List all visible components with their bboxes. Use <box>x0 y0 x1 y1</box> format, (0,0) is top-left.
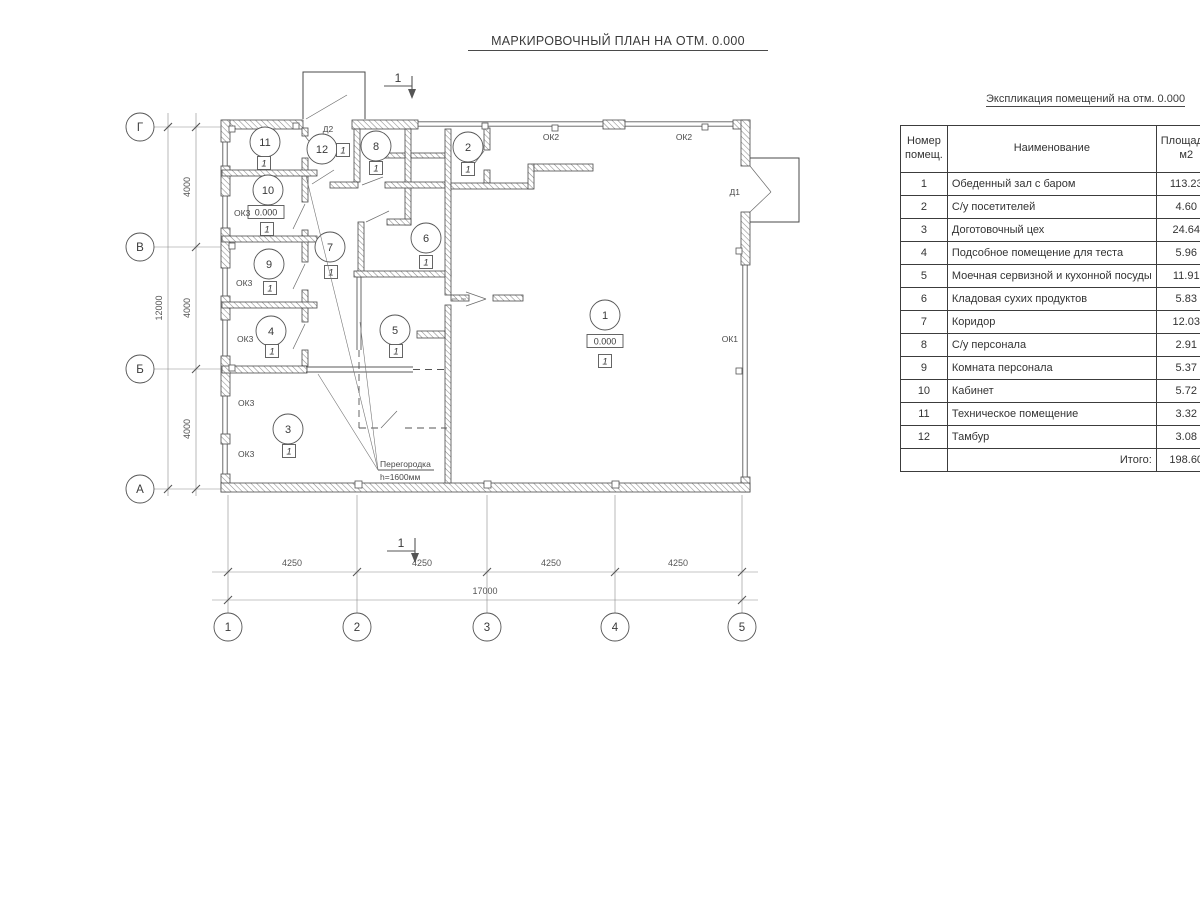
room-number: 3 <box>901 219 948 242</box>
section-mark-top: 1 <box>384 71 416 99</box>
window-label-ok3: ОК3 <box>236 278 253 288</box>
table-row: 9Комната персонала5.37 <box>901 357 1200 380</box>
svg-text:1: 1 <box>465 165 470 176</box>
room-marker-1: 1 <box>590 300 620 330</box>
table-row: 6Кладовая сухих продуктов5.83 <box>901 288 1200 311</box>
floor-mark: 1 <box>325 266 338 279</box>
table-row: 5Моечная сервизной и кухонной посуды11.9… <box>901 265 1200 288</box>
room-schedule-table: Номер помещ. Наименование Площадь, м2 Ка… <box>900 125 1200 472</box>
door-label-d1: Д1 <box>730 187 741 197</box>
grid-col-2: 2 <box>354 622 360 634</box>
room-number: 2 <box>901 196 948 219</box>
svg-text:1: 1 <box>267 284 272 295</box>
grid-row-a: А <box>136 484 144 496</box>
dim-4000-1: 4000 <box>182 177 192 197</box>
room-area: 24.64 <box>1156 219 1200 242</box>
table-row: 4Подсобное помещение для теста5.96 <box>901 242 1200 265</box>
floor-mark: 1 <box>266 345 279 358</box>
room-name: Подсобное помещение для теста <box>947 242 1156 265</box>
room-area: 5.72 <box>1156 380 1200 403</box>
dim-4250-4: 4250 <box>668 558 688 568</box>
svg-text:1: 1 <box>264 225 269 236</box>
room-marker-4: 4 <box>256 316 286 346</box>
porch-outline <box>303 72 365 119</box>
col-header-area: Площадь, м2 <box>1156 126 1200 173</box>
dim-12000: 12000 <box>154 295 164 320</box>
table-total-row: Итого: 198.60 <box>901 449 1200 472</box>
svg-text:1: 1 <box>261 159 266 170</box>
section-label: 1 <box>398 536 405 550</box>
room-number: 9 <box>901 357 948 380</box>
room-marker-8: 8 <box>361 131 391 161</box>
room-number: 10 <box>901 380 948 403</box>
room-marker-10: 10 <box>253 175 283 205</box>
room-area: 2.91 <box>1156 334 1200 357</box>
room-name: Моечная сервизной и кухонной посуды <box>947 265 1156 288</box>
floor-mark: 1 <box>258 157 271 170</box>
room-area: 12.03 <box>1156 311 1200 334</box>
room-marker-3: 3 <box>273 414 303 444</box>
col-header-name: Наименование <box>947 126 1156 173</box>
grid-col-3: 3 <box>484 622 490 634</box>
table-row: 2С/у посетителей4.60 <box>901 196 1200 219</box>
svg-text:1: 1 <box>602 310 608 322</box>
section-label: 1 <box>395 71 402 85</box>
room-number: 8 <box>901 334 948 357</box>
floor-mark: 1 <box>264 282 277 295</box>
svg-text:5: 5 <box>392 325 398 337</box>
room-name: Кабинет <box>947 380 1156 403</box>
svg-text:10: 10 <box>262 185 274 197</box>
svg-text:1: 1 <box>602 357 607 368</box>
floor-mark: 1 <box>261 223 274 236</box>
table-row: 3Доготовочный цех24.64 <box>901 219 1200 242</box>
room-name: Кладовая сухих продуктов <box>947 288 1156 311</box>
dashed-partitions <box>306 277 447 428</box>
grid-row-b: Б <box>136 364 144 376</box>
svg-text:4: 4 <box>268 326 274 338</box>
window-label-ok3: ОК3 <box>237 334 254 344</box>
room-number: 6 <box>901 288 948 311</box>
room-marker-6: 6 <box>411 223 441 253</box>
table-row: 12Тамбур3.08 <box>901 426 1200 449</box>
grid-col-1: 1 <box>225 622 231 634</box>
room-area: 113.23 <box>1156 173 1200 196</box>
svg-text:11: 11 <box>259 137 270 149</box>
room-name: Комната персонала <box>947 357 1156 380</box>
table-row: 11Техническое помещение3.32 <box>901 403 1200 426</box>
room-name: Тамбур <box>947 426 1156 449</box>
room-name: Обеденный зал с баром <box>947 173 1156 196</box>
elevation-mark: 0.000 <box>248 206 284 219</box>
floor-mark: 1 <box>337 144 350 157</box>
col-header-number: Номер помещ. <box>901 126 948 173</box>
grid-col-5: 5 <box>739 622 745 634</box>
svg-text:6: 6 <box>423 233 429 245</box>
room-area: 4.60 <box>1156 196 1200 219</box>
svg-text:1: 1 <box>373 164 378 175</box>
svg-text:1: 1 <box>340 146 345 157</box>
grid-col-4: 4 <box>612 622 619 634</box>
room-number: 11 <box>901 403 948 426</box>
dim-4000-3: 4000 <box>182 419 192 439</box>
svg-text:1: 1 <box>286 447 291 458</box>
svg-text:0.000: 0.000 <box>255 208 278 218</box>
window-label-ok3: ОК3 <box>234 208 251 218</box>
dim-4250-3: 4250 <box>541 558 561 568</box>
door-label-d2: Д2 <box>323 124 334 134</box>
partition-callout: Перегородка h=1600мм <box>306 176 434 482</box>
window-label-ok2: ОК2 <box>543 132 560 142</box>
table-row: 8С/у персонала2.91 <box>901 334 1200 357</box>
floor-mark: 1 <box>283 445 296 458</box>
floor-mark: 1 <box>370 162 383 175</box>
table-row: 1Обеденный зал с баром113.23 <box>901 173 1200 196</box>
schedule-title: Экспликация помещений на отм. 0.000 <box>986 93 1185 107</box>
room-number: 7 <box>901 311 948 334</box>
room-name: Доготовочный цех <box>947 219 1156 242</box>
window-label-ok2: ОК2 <box>676 132 693 142</box>
floor-plan: 4250 4250 4250 4250 17000 4000 4000 4000… <box>0 0 870 690</box>
room-marker-2: 2 <box>453 132 483 162</box>
room-number: 5 <box>901 265 948 288</box>
dim-17000: 17000 <box>472 586 497 596</box>
room-number: 4 <box>901 242 948 265</box>
window-label-ok3: ОК3 <box>238 398 255 408</box>
svg-text:7: 7 <box>327 242 333 254</box>
vestibule-outline <box>750 158 799 222</box>
floor-mark: 1 <box>390 345 403 358</box>
svg-text:1: 1 <box>393 347 398 358</box>
room-area: 3.32 <box>1156 403 1200 426</box>
section-mark-bottom: 1 <box>387 536 419 563</box>
svg-text:0.000: 0.000 <box>594 337 617 347</box>
room-marker-9: 9 <box>254 249 284 279</box>
room-area: 3.08 <box>1156 426 1200 449</box>
room-area: 5.83 <box>1156 288 1200 311</box>
room-name: С/у посетителей <box>947 196 1156 219</box>
partition-note-line1: Перегородка <box>380 459 431 469</box>
svg-text:12: 12 <box>316 144 328 156</box>
total-label: Итого: <box>947 449 1156 472</box>
svg-text:8: 8 <box>373 141 379 153</box>
room-name: С/у персонала <box>947 334 1156 357</box>
room-area: 11.91 <box>1156 265 1200 288</box>
room-area: 5.37 <box>1156 357 1200 380</box>
room-marker-11: 11 <box>250 127 280 157</box>
grid-row-v: В <box>136 242 144 254</box>
grid-row-g: Г <box>137 122 144 134</box>
room-name: Техническое помещение <box>947 403 1156 426</box>
svg-text:2: 2 <box>465 142 471 154</box>
table-row: 10Кабинет5.72 <box>901 380 1200 403</box>
room-area: 5.96 <box>1156 242 1200 265</box>
window-label-ok1: ОК1 <box>722 334 739 344</box>
room-marker-7: 7 <box>315 232 345 262</box>
room-marker-5: 5 <box>380 315 410 345</box>
drawing-sheet: МАРКИРОВОЧНЫЙ ПЛАН НА ОТМ. 0.000 <box>0 0 1200 900</box>
room-marker-12: 12 <box>307 134 337 164</box>
floor-mark: 1 <box>420 256 433 269</box>
dim-4000-2: 4000 <box>182 298 192 318</box>
table-row: 7Коридор12.03 <box>901 311 1200 334</box>
dim-4250-1: 4250 <box>282 558 302 568</box>
total-area: 198.60 <box>1156 449 1200 472</box>
floor-mark: 1 <box>462 163 475 176</box>
floor-mark: 1 <box>599 355 612 368</box>
window-label-ok3: ОК3 <box>238 449 255 459</box>
room-number: 12 <box>901 426 948 449</box>
elevation-mark: 0.000 <box>587 335 623 348</box>
room-name: Коридор <box>947 311 1156 334</box>
svg-text:1: 1 <box>269 347 274 358</box>
room-number: 1 <box>901 173 948 196</box>
section-arrow-icon <box>408 89 416 99</box>
grid-axes: Г В Б А 1 2 3 4 5 <box>126 113 756 641</box>
svg-text:3: 3 <box>285 424 291 436</box>
table-header-row: Номер помещ. Наименование Площадь, м2 Ка… <box>901 126 1200 173</box>
partition-note-line2: h=1600мм <box>380 472 420 482</box>
svg-text:9: 9 <box>266 259 272 271</box>
svg-text:1: 1 <box>423 258 428 269</box>
